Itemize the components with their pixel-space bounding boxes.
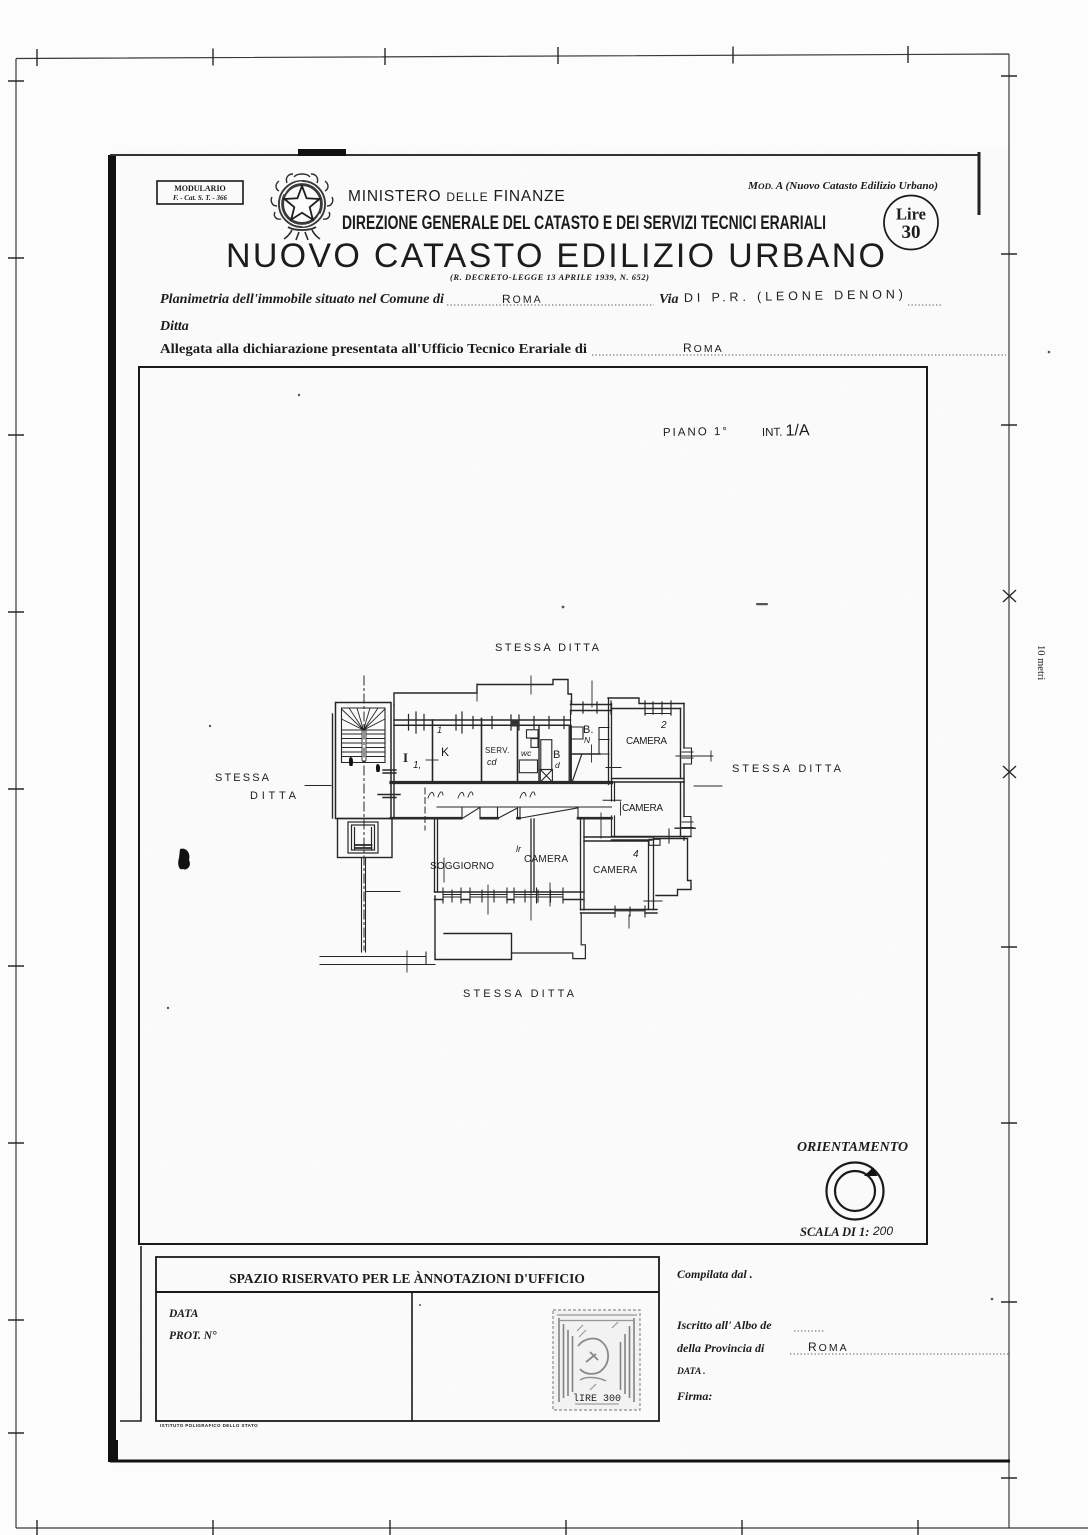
- svg-text:MOD. A (Nuovo Catasto Edilizio: MOD. A (Nuovo Catasto Edilizio Urbano): [747, 181, 938, 192]
- svg-text:d: d: [555, 760, 560, 770]
- svg-text:Lire: Lire: [896, 205, 926, 224]
- svg-text:4: 4: [633, 849, 639, 860]
- svg-text:CAMERA: CAMERA: [622, 803, 663, 814]
- svg-text:10 metri: 10 metri: [1035, 645, 1046, 680]
- svg-text:PROT. N°: PROT. N°: [169, 1330, 217, 1342]
- svg-text:SCALA DI 1:: SCALA DI 1:: [800, 1225, 869, 1239]
- svg-text:1: 1: [437, 725, 442, 735]
- svg-text:ISTITUTO POLIGRAFICO DELLO STA: ISTITUTO POLIGRAFICO DELLO STATO: [160, 1423, 258, 1428]
- svg-text:200: 200: [872, 1224, 893, 1238]
- svg-text:MODULARIO: MODULARIO: [174, 184, 226, 193]
- svg-text:SOGGIORNO: SOGGIORNO: [430, 861, 494, 872]
- svg-text:NUOVO CATASTO EDILIZIO URBANO: NUOVO CATASTO EDILIZIO URBANO: [226, 237, 885, 275]
- svg-text:K: K: [441, 745, 449, 759]
- svg-text:ORIENTAMENTO: ORIENTAMENTO: [797, 1139, 908, 1154]
- svg-text:lIRE 300: lIRE 300: [573, 1393, 621, 1405]
- svg-text:Ditta: Ditta: [159, 319, 189, 334]
- svg-text:2: 2: [660, 720, 667, 731]
- svg-text:SPAZIO RISERVATO PER LE ÀNNOTA: SPAZIO RISERVATO PER LE ÀNNOTAZIONI D'UF…: [229, 1271, 585, 1286]
- svg-text:F. - Cat. S. T. - 366: F. - Cat. S. T. - 366: [173, 194, 228, 202]
- svg-text:SERV.: SERV.: [485, 746, 510, 755]
- svg-text:DIREZIONE GENERALE DEL CATASTO: DIREZIONE GENERALE DEL CATASTO E DEI SER…: [342, 213, 826, 234]
- svg-text:Planimetria dell'immobile situ: Planimetria dell'immobile situato nel Co…: [160, 292, 444, 307]
- svg-text:Iscritto all' Albo de: Iscritto all' Albo de: [676, 1318, 772, 1332]
- svg-text:PIANO 1°: PIANO 1°: [663, 426, 727, 439]
- svg-text:CAMERA: CAMERA: [593, 865, 637, 876]
- svg-text:STESSA DITTA: STESSA DITTA: [732, 763, 842, 775]
- svg-text:(R. DECRETO-LEGGE 13 APRILE 19: (R. DECRETO-LEGGE 13 APRILE 1939, N. 652…: [450, 272, 649, 282]
- svg-text:STESSA DITTA: STESSA DITTA: [495, 642, 600, 654]
- svg-text:Via: Via: [659, 292, 678, 307]
- svg-text:N: N: [584, 735, 591, 745]
- svg-text:Compilata dal .: Compilata dal .: [677, 1267, 753, 1281]
- svg-text:cd: cd: [487, 757, 498, 767]
- svg-text:30: 30: [902, 222, 921, 243]
- svg-text:DATA .: DATA .: [676, 1367, 706, 1377]
- svg-text:Allegata alla dichiarazione pr: Allegata alla dichiarazione presentata a…: [160, 342, 587, 357]
- svg-text:DATA: DATA: [168, 1308, 199, 1320]
- svg-text:wc: wc: [521, 748, 532, 758]
- svg-text:CAMERA: CAMERA: [524, 854, 568, 865]
- svg-text:Firma:: Firma:: [676, 1389, 712, 1403]
- svg-text:ROMA: ROMA: [502, 292, 543, 306]
- svg-text:I: I: [403, 750, 408, 765]
- svg-text:CAMERA: CAMERA: [626, 736, 667, 747]
- svg-text:MINISTERO DELLE FINANZE: MINISTERO DELLE FINANZE: [348, 188, 565, 205]
- svg-text:ROMA: ROMA: [683, 341, 724, 355]
- svg-text:ROMA: ROMA: [808, 1340, 849, 1354]
- svg-text:della Provincia di: della Provincia di: [677, 1341, 765, 1355]
- svg-text:STESSA DITTA: STESSA DITTA: [463, 988, 575, 1000]
- svg-text:DITTA: DITTA: [250, 790, 297, 802]
- svg-text:1,: 1,: [413, 760, 421, 771]
